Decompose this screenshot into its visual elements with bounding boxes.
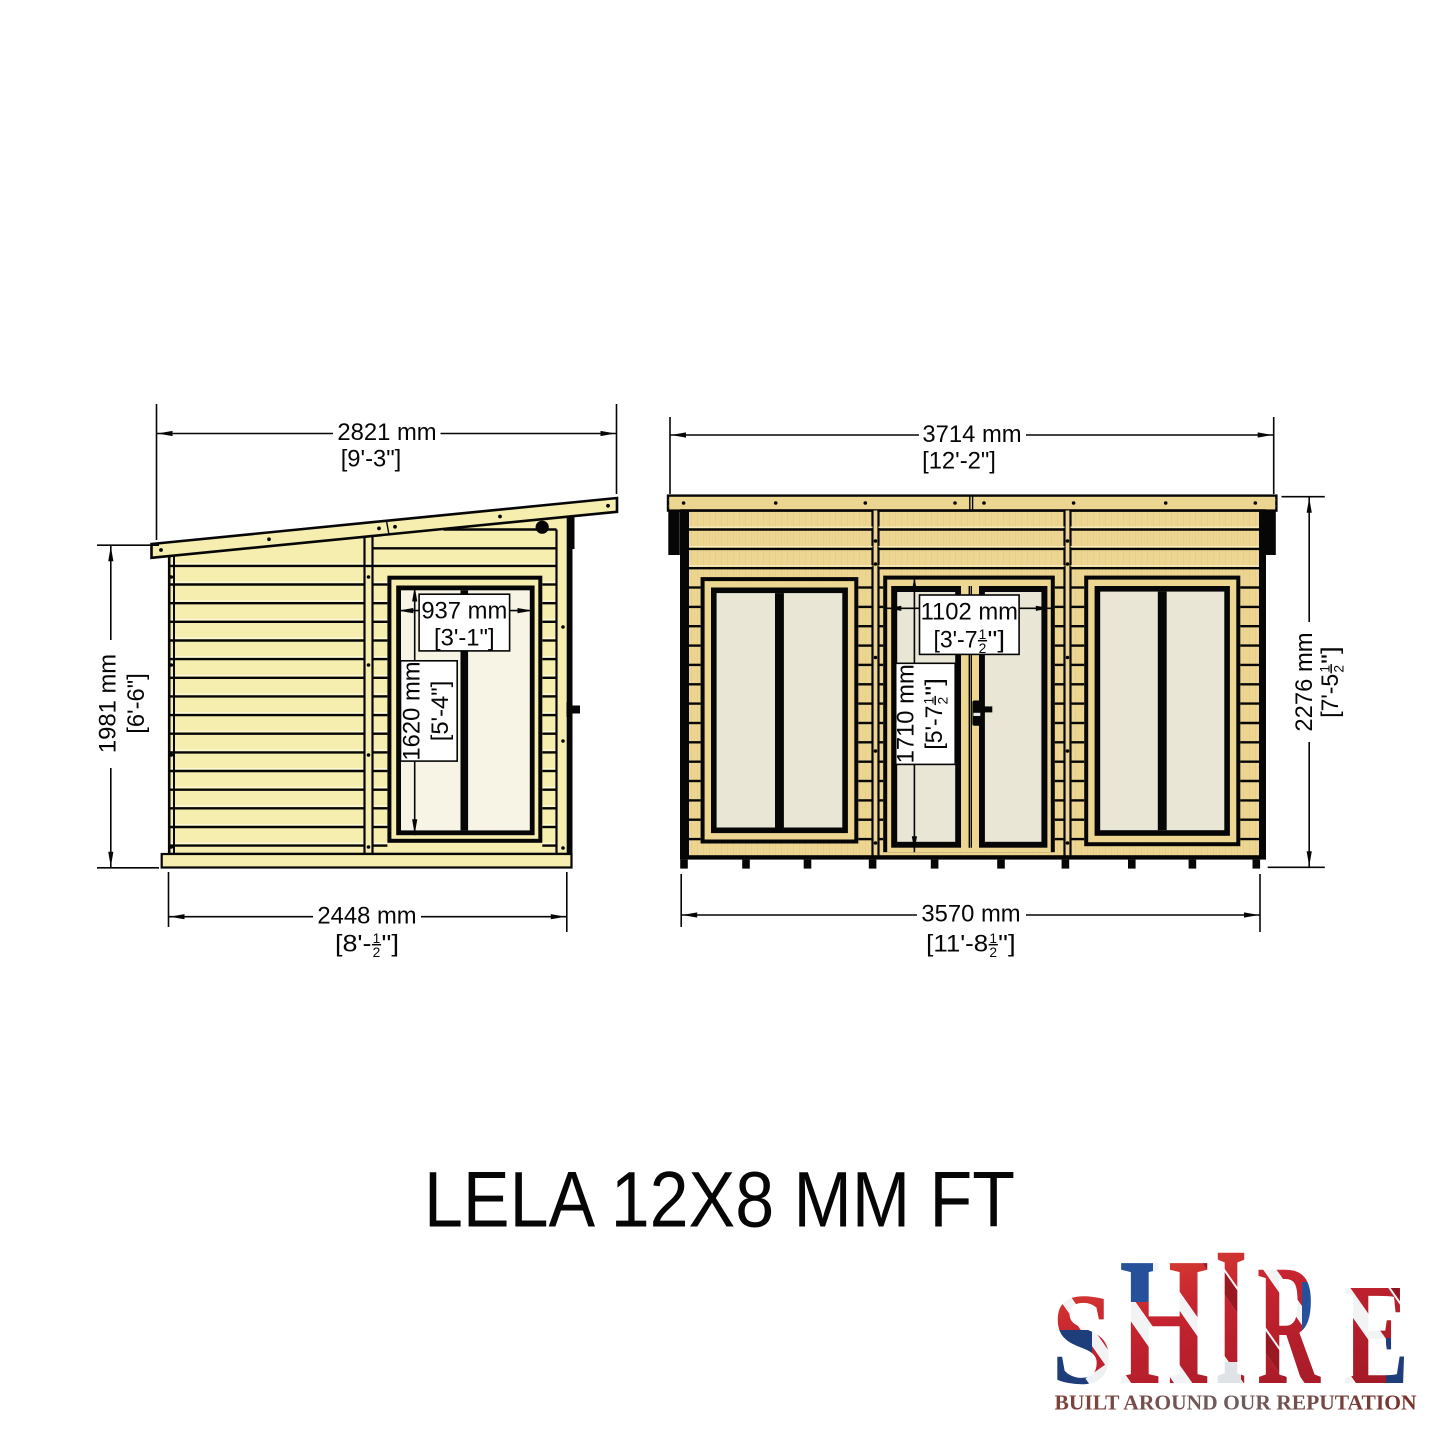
svg-text:"]: "] <box>988 627 1006 654</box>
svg-text:[5'-7: [5'-7 <box>921 706 948 750</box>
svg-text:[11'-8: [11'-8 <box>926 931 988 958</box>
svg-text:[12'-2"]: [12'-2"] <box>922 448 996 475</box>
svg-text:BUILT AROUND OUR REPUTATION: BUILT AROUND OUR REPUTATION <box>1055 1390 1417 1414</box>
svg-text:"]: "] <box>921 678 948 696</box>
svg-text:1: 1 <box>373 931 381 946</box>
svg-text:LELA 12X8 MM FT: LELA 12X8 MM FT <box>424 1155 1015 1243</box>
svg-text:2: 2 <box>373 945 381 960</box>
svg-text:1710 mm: 1710 mm <box>893 664 920 763</box>
svg-text:1620 mm: 1620 mm <box>399 661 426 760</box>
svg-text:"]: "] <box>998 931 1016 958</box>
svg-text:2: 2 <box>989 945 997 960</box>
svg-text:1: 1 <box>1317 665 1332 673</box>
svg-text:[3'-7: [3'-7 <box>934 627 978 654</box>
svg-text:1: 1 <box>921 697 936 705</box>
svg-text:2: 2 <box>1332 665 1347 673</box>
svg-text:3714 mm: 3714 mm <box>922 421 1021 448</box>
svg-text:"]: "] <box>382 931 400 958</box>
svg-text:1102 mm: 1102 mm <box>921 599 1018 626</box>
svg-text:937 mm: 937 mm <box>421 598 507 625</box>
svg-text:2: 2 <box>936 697 951 705</box>
svg-text:"]: "] <box>1317 646 1344 664</box>
svg-text:2: 2 <box>979 641 987 656</box>
svg-text:[9'-3"]: [9'-3"] <box>341 446 402 473</box>
svg-text:[3'-1"]: [3'-1"] <box>434 625 495 652</box>
svg-text:1981 mm: 1981 mm <box>95 654 122 753</box>
svg-text:1: 1 <box>979 627 987 642</box>
svg-text:2821 mm: 2821 mm <box>337 419 436 446</box>
svg-text:2448 mm: 2448 mm <box>317 902 416 929</box>
svg-text:1: 1 <box>989 931 997 946</box>
svg-text:3570 mm: 3570 mm <box>921 901 1020 928</box>
svg-text:[7'-5: [7'-5 <box>1317 674 1344 718</box>
svg-text:[5'-4"]: [5'-4"] <box>427 681 454 742</box>
svg-text:[8'-: [8'- <box>335 931 372 958</box>
svg-text:2276 mm: 2276 mm <box>1291 632 1318 731</box>
svg-text:[6'-6"]: [6'-6"] <box>123 673 150 734</box>
